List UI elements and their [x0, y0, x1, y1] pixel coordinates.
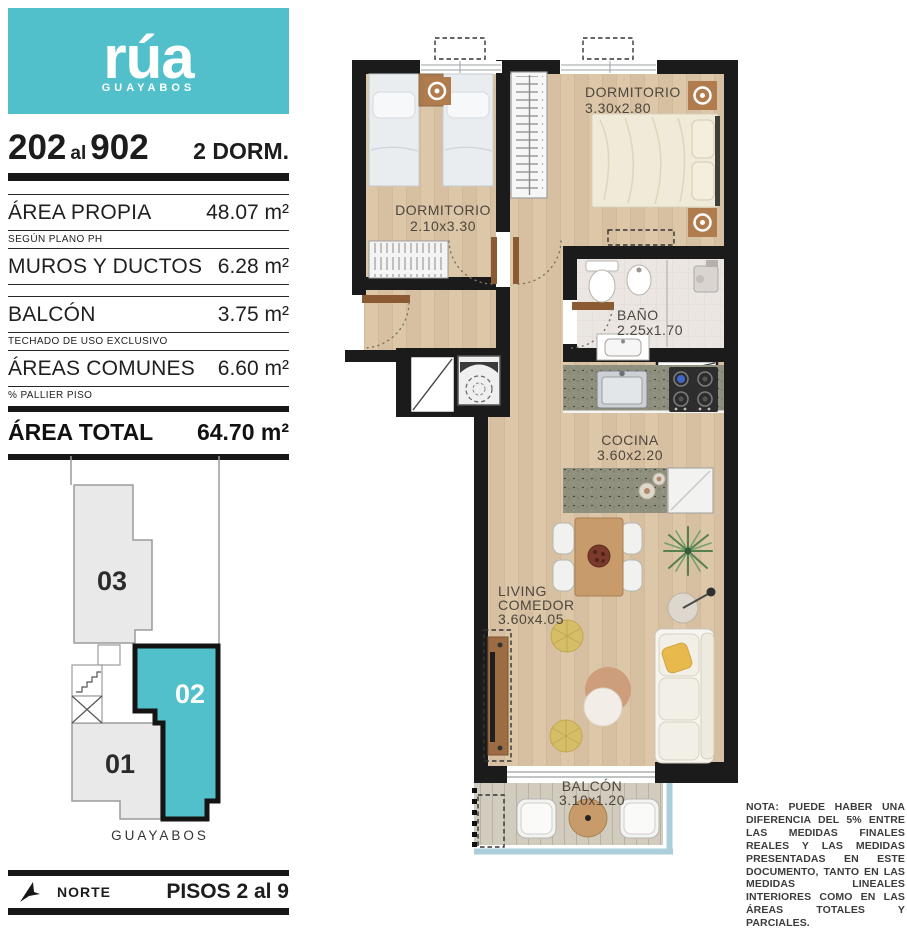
dorm2-door-leaf [513, 237, 519, 284]
facade-dashed-box [435, 38, 485, 59]
single-bed [369, 74, 419, 186]
kitchen-island [563, 468, 713, 513]
dorm1-door-leaf [491, 237, 497, 284]
bath-label: BAÑO [617, 307, 659, 323]
pillow [692, 120, 714, 158]
chair [553, 523, 574, 554]
dorm1-label: DORMITORIO [395, 202, 491, 218]
stove-icon [669, 367, 718, 412]
bath-door-leaf [572, 302, 614, 310]
tv [490, 652, 495, 742]
kitchen-label: COCINA [601, 432, 659, 448]
bath-dims: 2.25x1.70 [617, 322, 683, 338]
pillow [447, 92, 489, 118]
dorm1-dims: 2.10x3.30 [410, 218, 476, 234]
tv-console [484, 630, 511, 761]
pillow [692, 162, 714, 200]
pouf [550, 720, 582, 752]
pillow [373, 92, 415, 118]
headboard [715, 116, 720, 206]
kitchen-counter [563, 365, 724, 413]
wardrobe [511, 72, 547, 198]
balcony-dims: 3.10x1.20 [559, 792, 625, 808]
kitchen-sink-icon [597, 371, 647, 408]
facade-dashed-box [583, 38, 633, 59]
entry-door-leaf [362, 295, 410, 303]
chair [621, 523, 642, 554]
window-dorm1 [420, 61, 502, 73]
window-dorm2 [560, 61, 657, 73]
centerpiece-bowl [588, 545, 610, 567]
sofa [655, 629, 714, 763]
bidet-icon [627, 265, 651, 295]
dorm2-dims: 3.30x2.80 [585, 100, 651, 116]
washing-machine [458, 356, 500, 405]
dorm2-label: DORMITORIO [585, 84, 681, 100]
round-rug [584, 688, 622, 726]
chair [553, 560, 574, 591]
living-dims: 3.60x4.05 [498, 611, 564, 627]
chair [621, 560, 642, 591]
floor-plan: DORMITORIO 2.10x3.30 DORMITORIO 3.30x2.8… [0, 0, 907, 921]
kitchen-dims: 3.60x2.20 [597, 447, 663, 463]
